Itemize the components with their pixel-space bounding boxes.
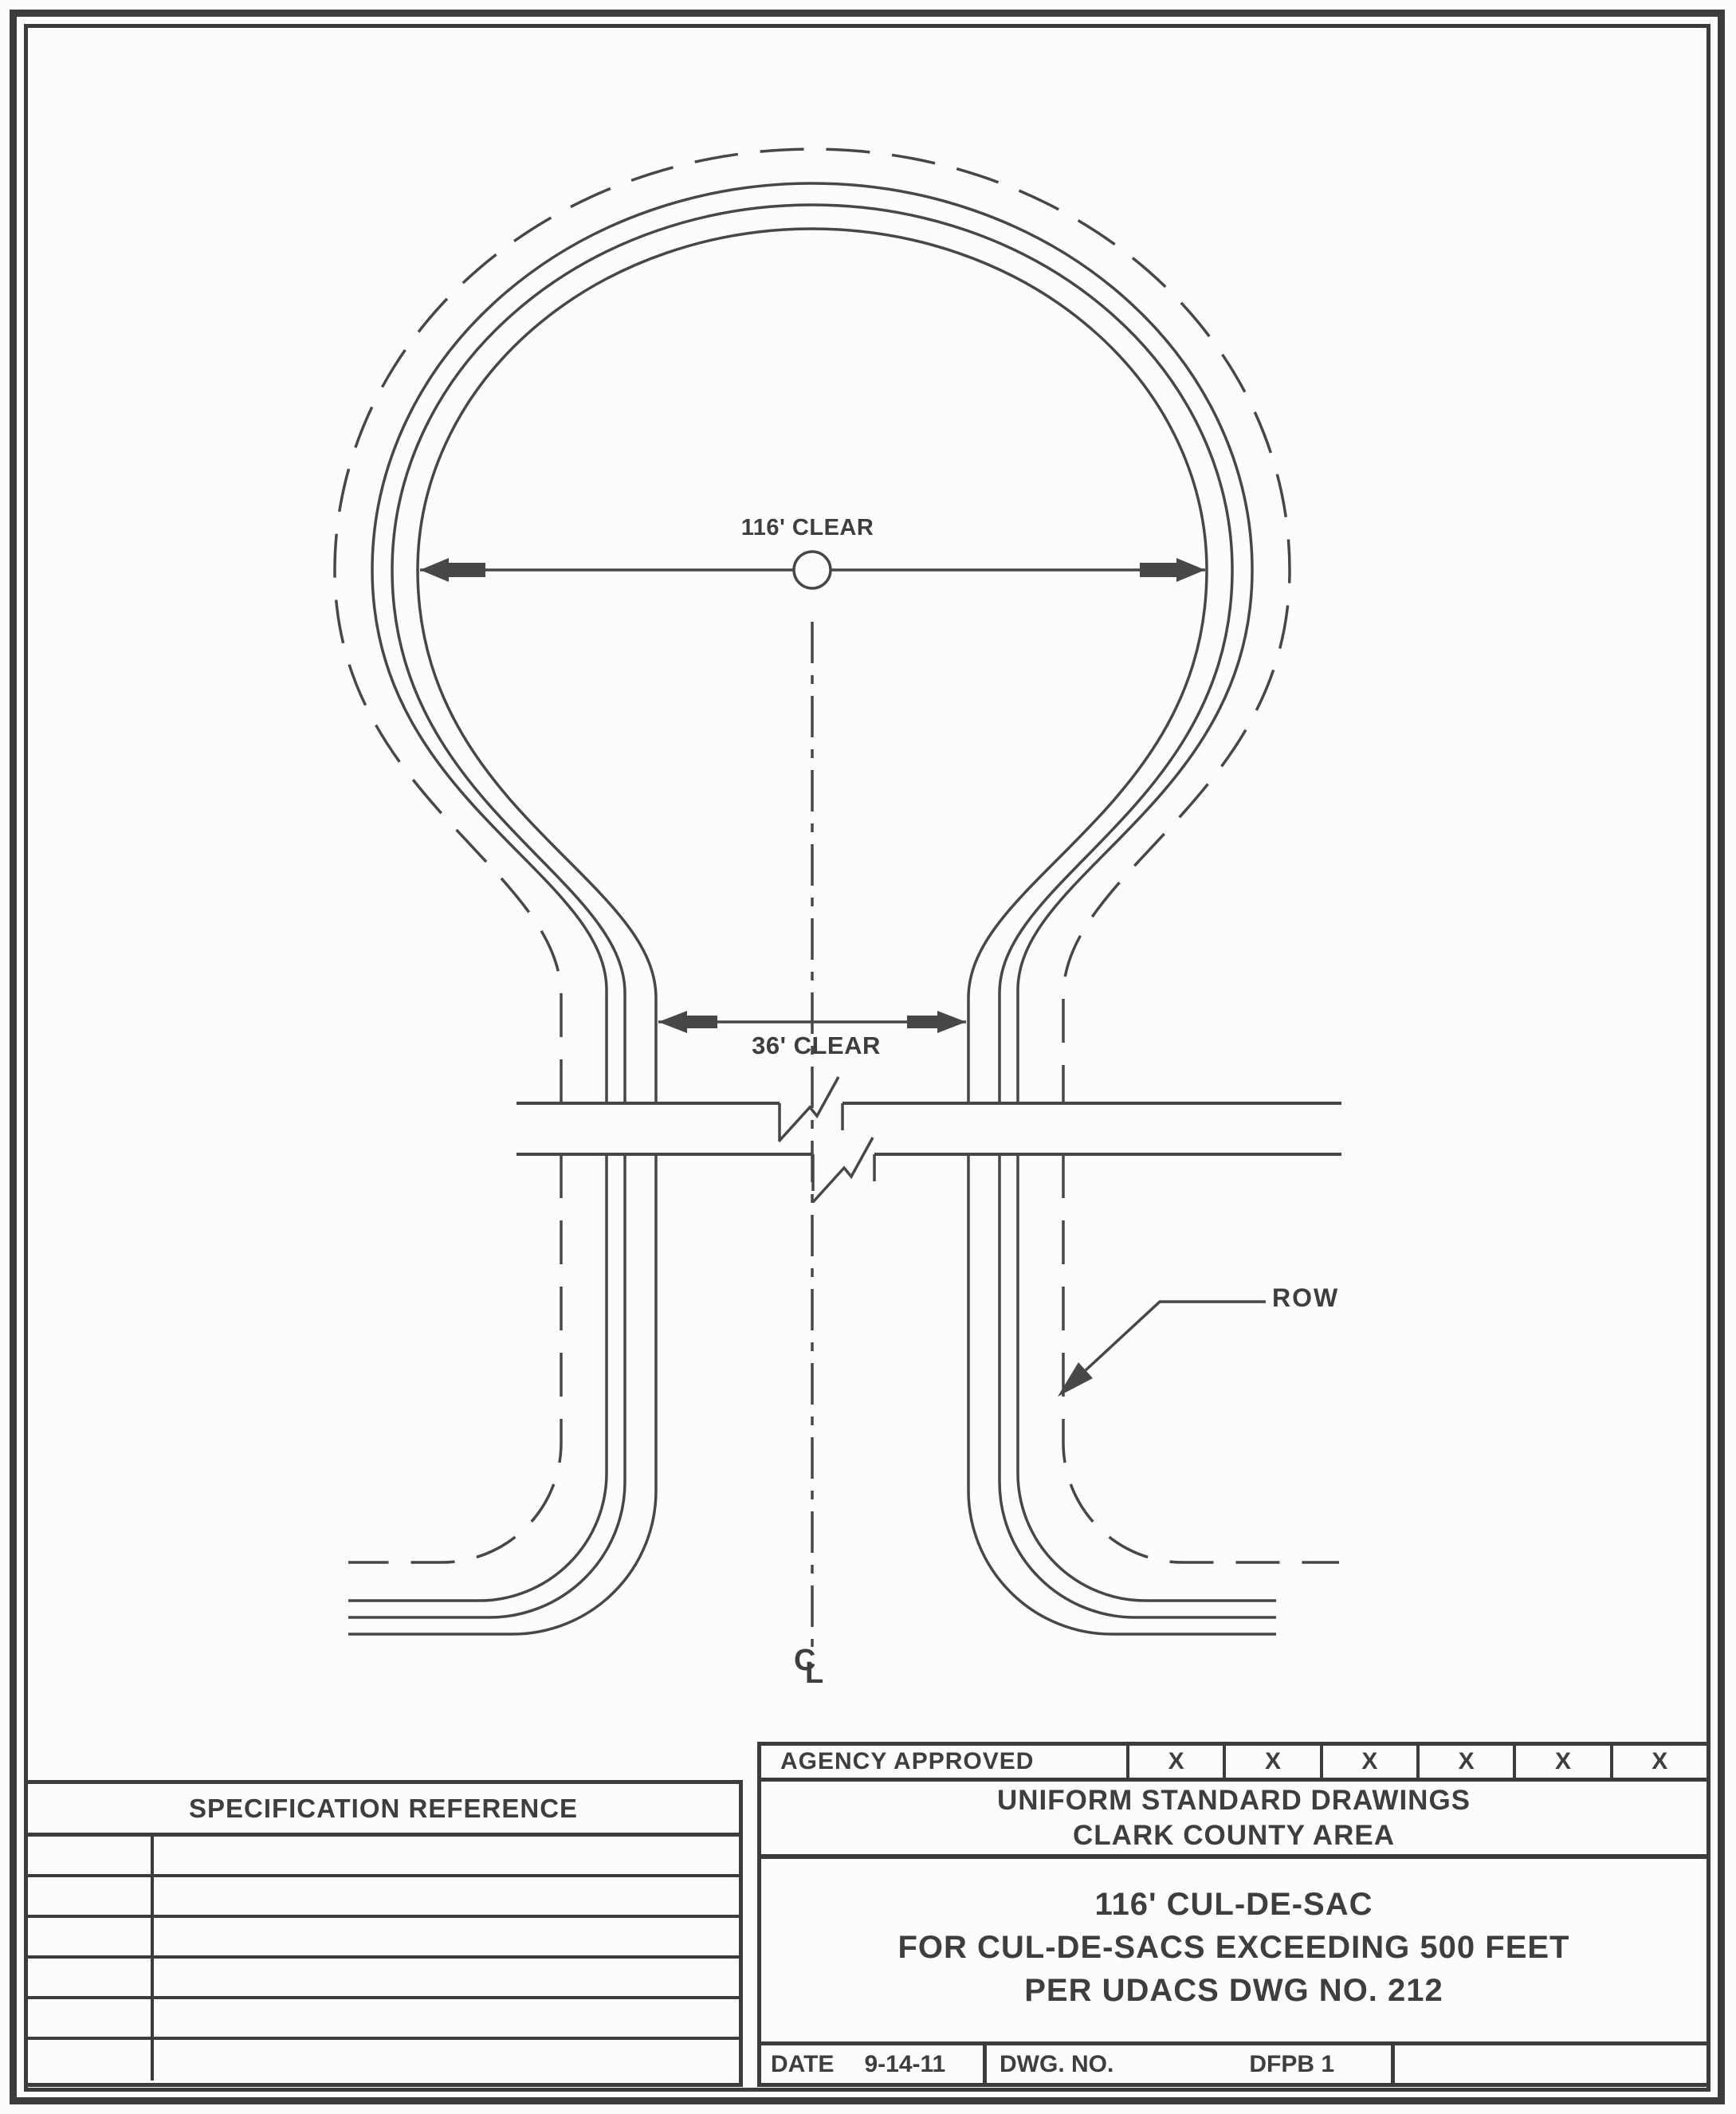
- dwg-no-label: DWG. NO.: [1000, 2051, 1113, 2078]
- row-leader: [1058, 1302, 1266, 1397]
- dimension-36-arrow-right: [937, 1011, 966, 1033]
- dimension-36-arrow-right-tail: [907, 1016, 937, 1028]
- spec-row: [28, 1877, 739, 1918]
- break-stubs: [780, 1103, 874, 1191]
- drawing-sheet: 116' CLEAR 36' CLEAR ROW C L SPECIFICATI…: [0, 0, 1736, 2114]
- dimension-116-arrow-left: [420, 558, 449, 582]
- date-value: 9-14-11: [864, 2051, 945, 2078]
- break-symbol-2: [813, 1138, 873, 1202]
- spec-cell: [28, 1837, 154, 1874]
- dimension-36-arrow-left: [658, 1011, 687, 1033]
- sheet-title-line2: FOR CUL-DE-SACS EXCEEDING 500 FEET: [897, 1926, 1569, 1969]
- agency-approved-cell: X: [1420, 1746, 1516, 1778]
- sheet-title-line1: 116' CUL-DE-SAC: [1094, 1883, 1373, 1926]
- dimension-116-arrow-right: [1176, 558, 1205, 582]
- spec-cell: [154, 1918, 739, 1955]
- centerline-symbol-l: L: [805, 1656, 823, 1691]
- title-block: AGENCY APPROVED X X X X X X UNIFORM STAN…: [757, 1742, 1710, 2087]
- dwg-no-value: DFPB 1: [1249, 2051, 1334, 2078]
- agency-approved-cell: X: [1516, 1746, 1612, 1778]
- org-title-box: UNIFORM STANDARD DRAWINGS CLARK COUNTY A…: [761, 1782, 1707, 1859]
- spec-cell: [28, 1959, 154, 1996]
- row-line-lower-right: [1063, 1154, 1339, 1562]
- date-cell: DATE 9-14-11: [761, 2045, 987, 2083]
- agency-approved-cell: X: [1129, 1746, 1226, 1778]
- empty-cell: [1395, 2045, 1707, 2083]
- spec-row: [28, 1959, 739, 1999]
- curb-line-inner-lower-left: [348, 1154, 656, 1634]
- spec-cell: [154, 1837, 739, 1874]
- bulb-center-marker: [794, 552, 831, 588]
- break-band: [516, 1077, 1341, 1202]
- org-title-line1: UNIFORM STANDARD DRAWINGS: [997, 1783, 1471, 1818]
- spec-cell: [154, 1999, 739, 2037]
- dimension-36-arrow-left-tail: [687, 1016, 717, 1028]
- dimension-116-arrow-right-tail: [1140, 563, 1176, 577]
- spec-cell: [28, 1918, 154, 1955]
- spec-cell: [154, 2040, 739, 2081]
- curb-line-outer-lower-left: [348, 1154, 607, 1601]
- curb-line-outer-lower-right: [1018, 1154, 1276, 1601]
- spec-cell: [28, 1999, 154, 2037]
- spec-row: [28, 1918, 739, 1959]
- dwg-no-cell: DWG. NO. DFPB 1: [987, 2045, 1395, 2083]
- sheet-title-line3: PER UDACS DWG NO. 212: [1024, 1969, 1443, 2012]
- row-leader-line: [1086, 1302, 1266, 1370]
- row-label: ROW: [1272, 1283, 1339, 1313]
- title-block-bottom-row: DATE 9-14-11 DWG. NO. DFPB 1: [761, 2041, 1707, 2083]
- curb-line-inner-lower-right: [968, 1154, 1276, 1634]
- spec-row: [28, 2040, 739, 2081]
- street-dimension-label: 36' CLEAR: [752, 1031, 881, 1060]
- break-symbol-1: [779, 1077, 839, 1141]
- org-title-line2: CLARK COUNTY AREA: [1073, 1818, 1395, 1853]
- agency-approved-cell: X: [1613, 1746, 1707, 1778]
- lower-street-lines: [348, 1154, 1339, 1634]
- specification-reference-header: SPECIFICATION REFERENCE: [28, 1784, 739, 1837]
- spec-cell: [28, 2040, 154, 2081]
- agency-approved-label: AGENCY APPROVED: [761, 1746, 1129, 1778]
- agency-approved-cell: X: [1323, 1746, 1420, 1778]
- dimension-116: [420, 552, 1205, 588]
- spec-cell: [28, 1877, 154, 1915]
- sheet-title-box: 116' CUL-DE-SAC FOR CUL-DE-SACS EXCEEDIN…: [761, 1859, 1707, 2041]
- row-line-lower-left: [348, 1154, 561, 1562]
- agency-approved-cell: X: [1226, 1746, 1322, 1778]
- spec-cell: [154, 1959, 739, 1996]
- specification-reference-table: SPECIFICATION REFERENCE: [24, 1780, 743, 2087]
- centerline-symbol: C L: [787, 1644, 843, 1699]
- spec-row: [28, 1999, 739, 2040]
- spec-cell: [154, 1877, 739, 1915]
- agency-approved-row: AGENCY APPROVED X X X X X X: [761, 1746, 1707, 1782]
- spec-row: [28, 1837, 739, 1877]
- dimension-116-arrow-left-tail: [449, 563, 485, 577]
- date-label: DATE: [771, 2051, 834, 2078]
- bulb-dimension-label: 116' CLEAR: [741, 515, 874, 541]
